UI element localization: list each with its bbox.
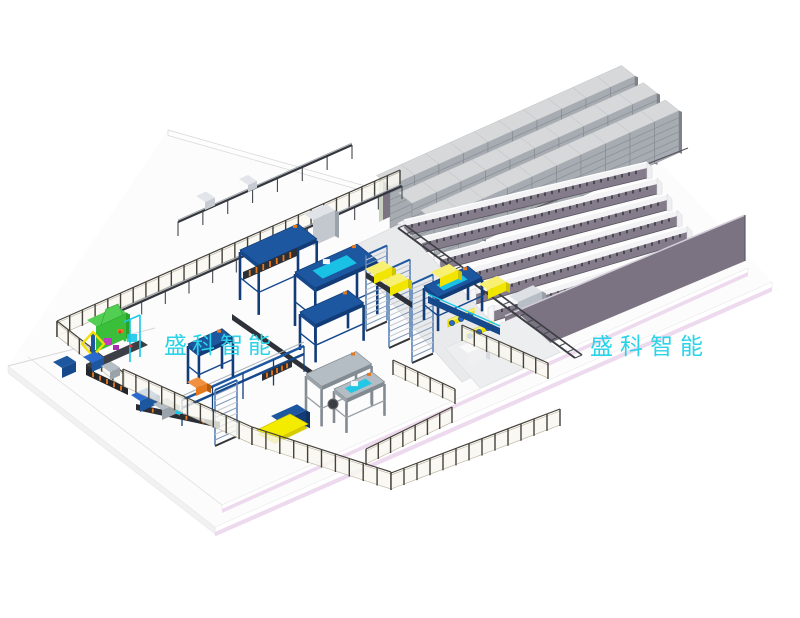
watermark-right: 盛科智能	[590, 336, 710, 359]
factory-3d-render	[0, 0, 800, 618]
watermark-left: 盛科智能	[164, 335, 276, 358]
factory-3d-layout: 盛科智能 盛科智能	[0, 0, 800, 618]
